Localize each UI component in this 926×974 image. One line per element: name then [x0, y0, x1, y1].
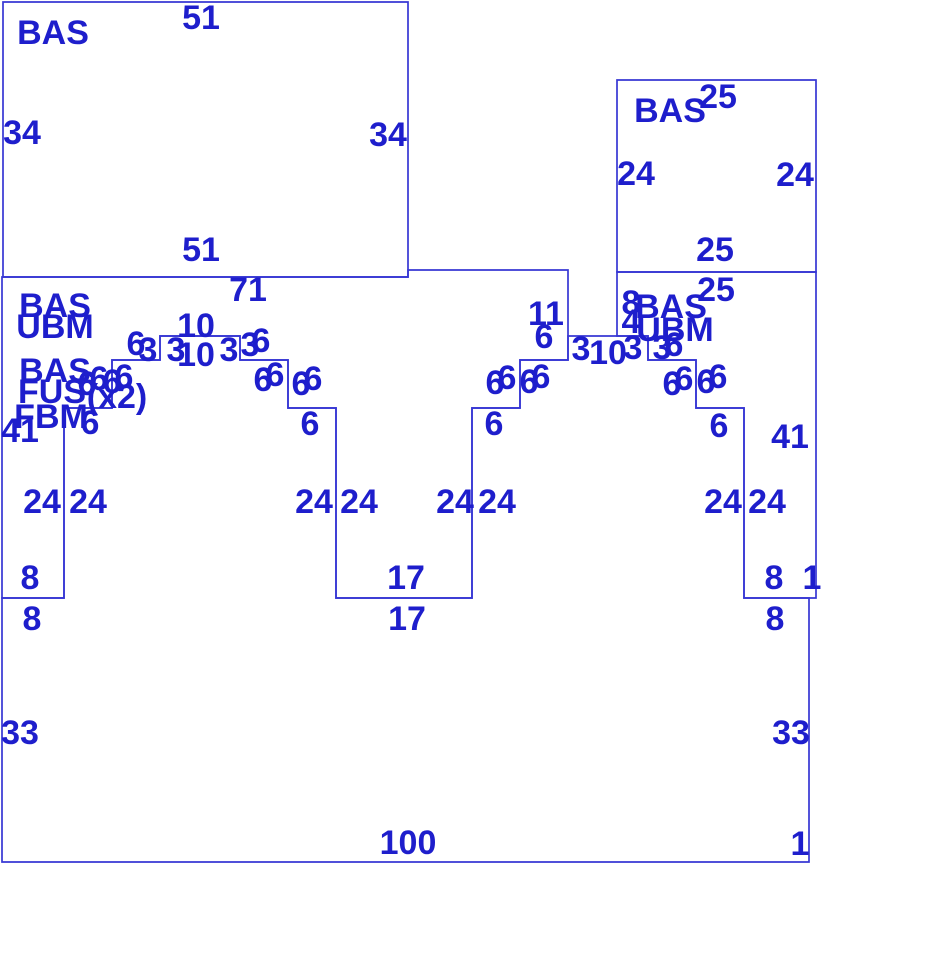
dimension-label: 10 [177, 336, 215, 374]
dimension-label: 24 [617, 155, 655, 193]
dimension-label: 17 [387, 559, 425, 597]
dimension-label: 24 [748, 483, 786, 521]
dimension-label: 25 [699, 78, 737, 116]
dimension-label: 3 [139, 331, 158, 369]
dimension-label: 8 [766, 600, 785, 638]
dimension-label: 6 [709, 358, 728, 396]
dimension-label: 51 [182, 0, 220, 37]
dimension-label: 6 [485, 405, 504, 443]
drawing-canvas: BASBASBASUBMBASFUS(x2)FBMBASUBM513434512… [0, 0, 926, 974]
dimension-label: 24 [776, 156, 814, 194]
dimension-label: 41 [771, 418, 809, 456]
dimension-label: 17 [388, 600, 426, 638]
dimension-label: 6 [532, 358, 551, 396]
dimension-label: 1 [803, 559, 822, 597]
dimension-label: 24 [69, 483, 107, 521]
dimension-label: 6 [301, 405, 320, 443]
panel-type-label: BAS [634, 92, 706, 130]
dimension-label: 24 [295, 483, 333, 521]
dimension-label: 6 [710, 407, 729, 445]
dimension-label: 6 [266, 356, 285, 394]
dimension-label: 6 [115, 358, 134, 396]
dimension-label: 51 [182, 231, 220, 269]
dimension-label: 6 [252, 322, 271, 360]
dimension-label: 25 [696, 231, 734, 269]
dimension-label: 8 [21, 559, 40, 597]
dimension-label: 6 [535, 318, 554, 356]
dimension-label: 6 [665, 326, 684, 364]
dimension-label: 6 [498, 359, 517, 397]
panel-type-label: BAS [17, 14, 89, 52]
dimension-label: 10 [589, 334, 627, 372]
dimension-label: 33 [772, 714, 810, 752]
dimension-label: 34 [3, 114, 41, 152]
dimension-label: 3 [220, 331, 239, 369]
dimension-label: 6 [675, 360, 694, 398]
dimension-label: 34 [369, 116, 407, 154]
panel-diagram: BASBASBASUBMBASFUS(x2)FBMBASUBM513434512… [0, 0, 926, 974]
dimension-label: 41 [1, 412, 39, 450]
dimension-label: 24 [704, 483, 742, 521]
dimension-label: 24 [340, 483, 378, 521]
dimension-label: 24 [478, 483, 516, 521]
panel-type-label: UBM [16, 308, 93, 346]
dimension-label: 3 [624, 329, 643, 367]
dimension-label: 25 [697, 271, 735, 309]
dimension-label: 33 [1, 714, 39, 752]
dimension-label: 24 [436, 483, 474, 521]
dimension-label: 3 [572, 330, 591, 368]
dimension-label: 1 [791, 825, 810, 863]
dimension-label: 71 [229, 271, 267, 309]
dimension-label: 6 [81, 404, 100, 442]
dimension-label: 8 [765, 559, 784, 597]
dimension-label: 100 [380, 824, 437, 862]
dimension-label: 8 [23, 600, 42, 638]
dimension-label: 24 [23, 483, 61, 521]
dimension-label: 6 [304, 360, 323, 398]
